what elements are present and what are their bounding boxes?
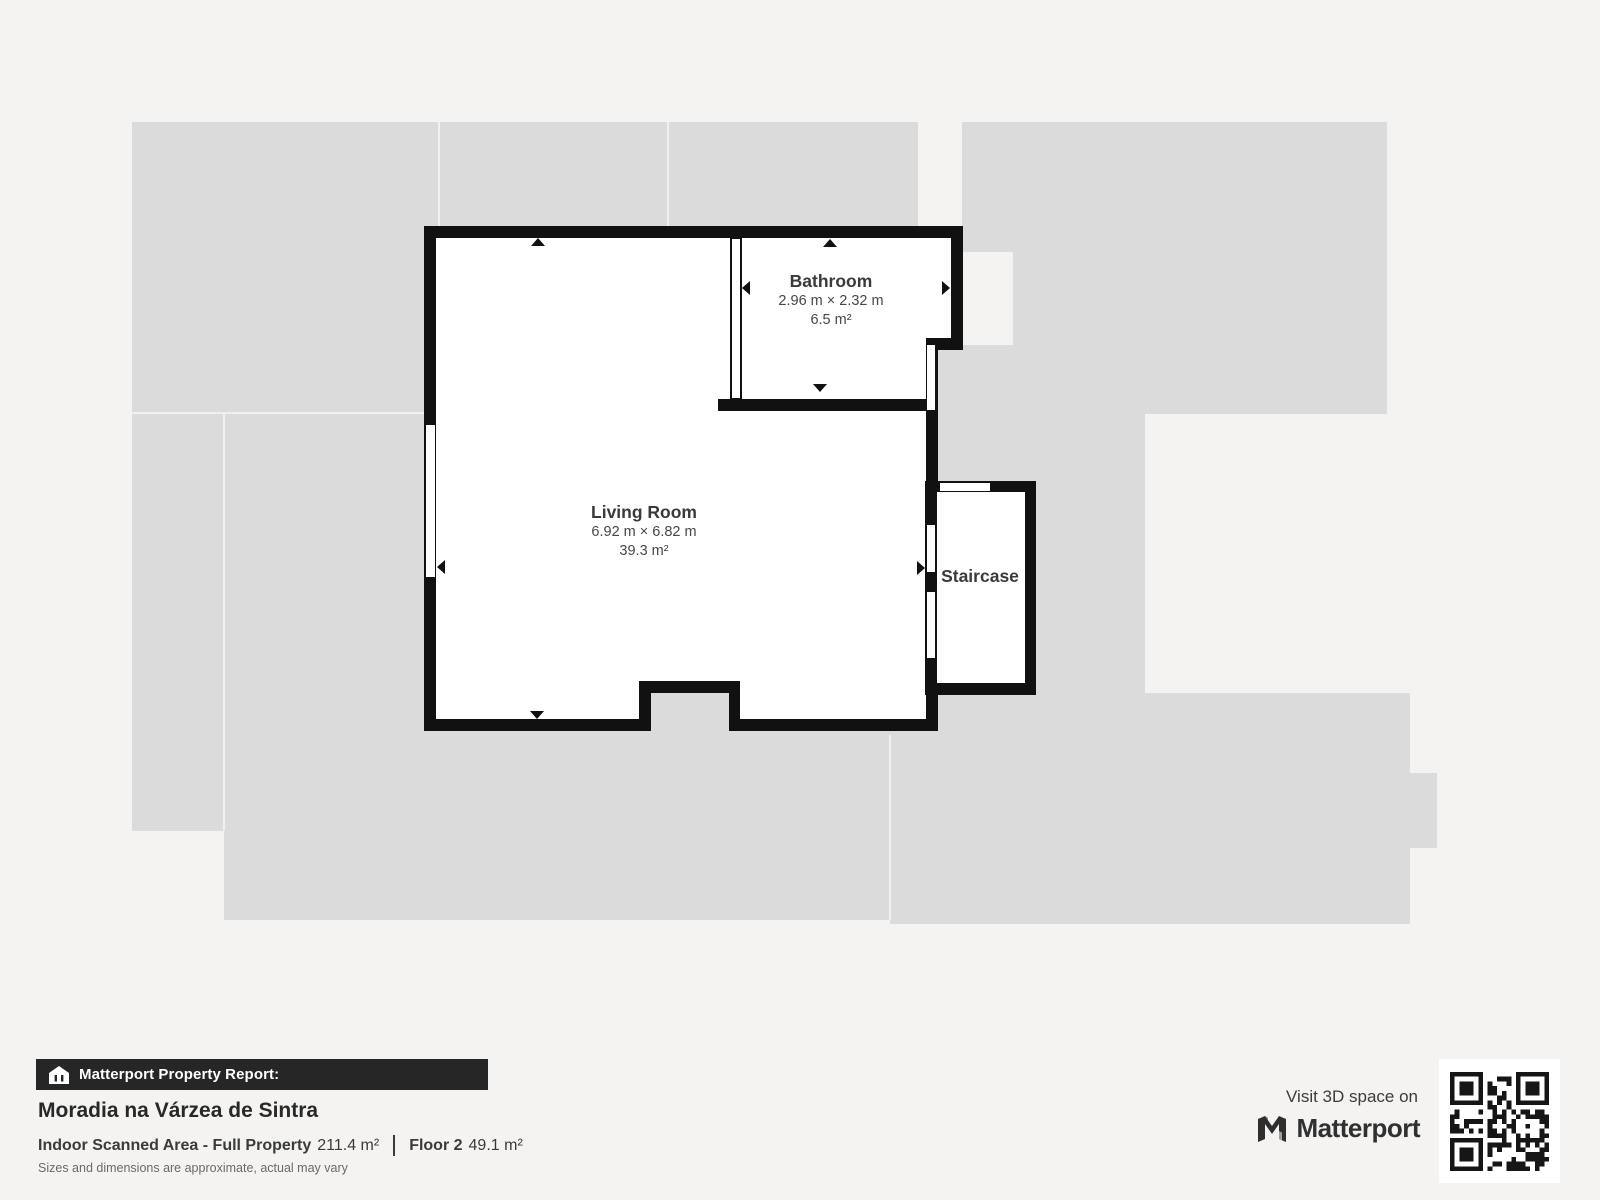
visit-3d-label: Visit 3D space on xyxy=(1100,1087,1420,1107)
brand-wordmark: Matterport xyxy=(1296,1113,1420,1144)
area-stats-row: Indoor Scanned Area - Full Property 211.… xyxy=(38,1135,523,1156)
room-name: Staircase xyxy=(941,565,1019,587)
report-header-label: Matterport Property Report: xyxy=(79,1066,279,1083)
room-area: 39.3 m² xyxy=(444,542,844,561)
matterport-logo-icon xyxy=(1256,1115,1288,1143)
room-dimensions: 6.92 m × 6.82 m xyxy=(444,523,844,542)
opening-staircase-top xyxy=(940,483,990,491)
room-label-staircase: Staircase xyxy=(941,565,1019,587)
visit-3d-block: Visit 3D space on Matterport xyxy=(1100,1087,1420,1144)
measure-arrow-down-icon xyxy=(530,711,544,719)
floor-label: Floor 2 xyxy=(409,1137,462,1155)
matterport-floorplan-report: Living Room 6.92 m × 6.82 m 39.3 m² Bath… xyxy=(0,0,1600,1200)
measure-arrow-left-icon xyxy=(437,560,445,574)
scanned-area-label: Indoor Scanned Area - Full Property xyxy=(38,1137,311,1155)
bathroom-wall-stub xyxy=(718,399,730,411)
stair-notch-floor xyxy=(651,693,729,731)
window-staircase-left-2 xyxy=(927,592,935,658)
underlay-seam xyxy=(889,735,891,920)
measure-arrow-right-icon xyxy=(917,561,925,575)
scanned-area-value: 211.4 m² xyxy=(317,1137,379,1155)
window-below-bathroom xyxy=(927,345,935,410)
measure-arrow-down-icon xyxy=(813,384,827,392)
window-living-left xyxy=(426,425,435,577)
underlay-seam xyxy=(223,414,225,831)
report-header-bar: Matterport Property Report: xyxy=(36,1059,488,1090)
disclaimer-text: Sizes and dimensions are approximate, ac… xyxy=(38,1161,348,1175)
room-label-living-room: Living Room 6.92 m × 6.82 m 39.3 m² xyxy=(444,501,844,561)
measure-arrow-right-icon xyxy=(942,281,950,295)
qr-code-svg xyxy=(1450,1072,1549,1171)
room-dimensions: 2.96 m × 2.32 m xyxy=(731,292,931,311)
floor-area-value: 49.1 m² xyxy=(469,1137,523,1155)
house-icon xyxy=(49,1066,69,1084)
measure-arrow-up-icon xyxy=(823,239,837,247)
underlay-cutout xyxy=(962,252,1013,345)
staircase-floor xyxy=(937,492,1025,683)
room-name: Living Room xyxy=(444,501,844,523)
brand-row: Matterport xyxy=(1100,1113,1420,1144)
stats-divider xyxy=(393,1135,395,1156)
room-area: 6.5 m² xyxy=(731,311,931,330)
room-label-bathroom: Bathroom 2.96 m × 2.32 m 6.5 m² xyxy=(731,270,931,330)
qr-code xyxy=(1439,1059,1560,1183)
window-staircase-left-1 xyxy=(927,525,935,572)
room-name: Bathroom xyxy=(731,270,931,292)
underlay-region xyxy=(890,693,1410,924)
property-name: Moradia na Várzea de Sintra xyxy=(38,1099,318,1123)
underlay-region xyxy=(1410,773,1437,848)
measure-arrow-up-icon xyxy=(531,238,545,246)
underlay-region xyxy=(132,414,224,831)
